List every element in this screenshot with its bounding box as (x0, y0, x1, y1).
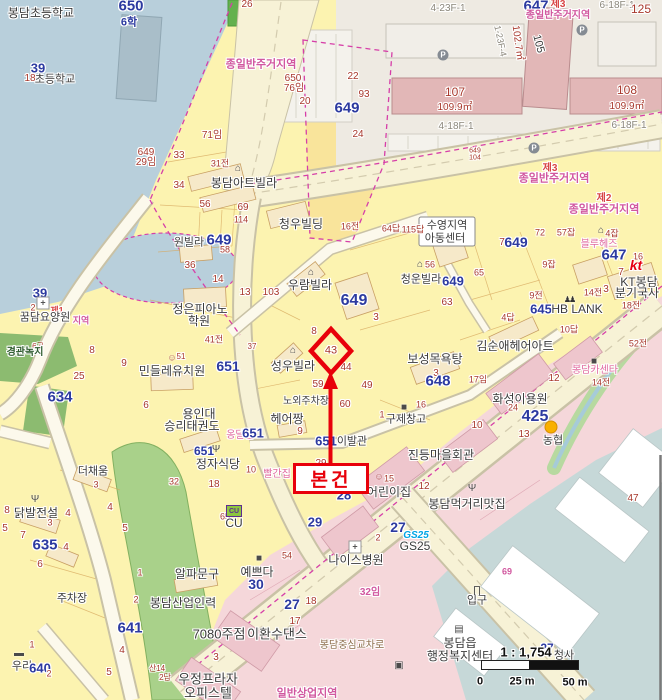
cu-icon: CU (226, 505, 242, 517)
map-icons-layer: ⌂⌂⌂⌂⌂ΨΨΨ++☺☺■■■♟♟∏▣▤▬PPPCU (0, 0, 662, 700)
shop-icon: ■ (401, 403, 407, 413)
shop-icon: ■ (256, 554, 262, 564)
house-icon: ⌂ (417, 260, 423, 270)
school-icon: ▬ (14, 649, 24, 659)
house-icon: ⌂ (235, 164, 241, 174)
gov-icon: ▤ (454, 625, 463, 635)
bus-icon: ▣ (394, 661, 403, 671)
restaurant-icon: Ψ (468, 484, 476, 494)
shop-icon: ■ (591, 357, 597, 367)
child-icon: ☺ (167, 354, 176, 363)
restaurant-icon: Ψ (31, 495, 39, 505)
child-icon: ☺ (374, 473, 383, 482)
scale-bar (481, 660, 579, 670)
house-icon: ⌂ (598, 226, 604, 236)
house-icon: ⌂ (290, 346, 296, 356)
scale-bar-white (482, 661, 529, 669)
parking-icon: P (438, 50, 449, 61)
subject-label-box: 본건 (293, 463, 369, 494)
parking-icon: P (577, 25, 588, 36)
nh-icon (545, 421, 558, 434)
hospital-icon: + (349, 541, 362, 554)
hospital-icon: + (37, 297, 50, 310)
restaurant-icon: Ψ (212, 445, 220, 455)
house-icon: ⌂ (308, 268, 314, 278)
scale-bar-black (529, 661, 578, 669)
parking-icon: P (529, 143, 540, 154)
bank-icon: ♟♟ (564, 296, 574, 304)
gate-icon: ∏ (473, 586, 481, 596)
map-canvas[interactable]: 봉담초등학교6506학263918초등학교종일반주거지역65076임206492… (0, 0, 662, 700)
subject-label-text: 본건 (311, 465, 352, 492)
